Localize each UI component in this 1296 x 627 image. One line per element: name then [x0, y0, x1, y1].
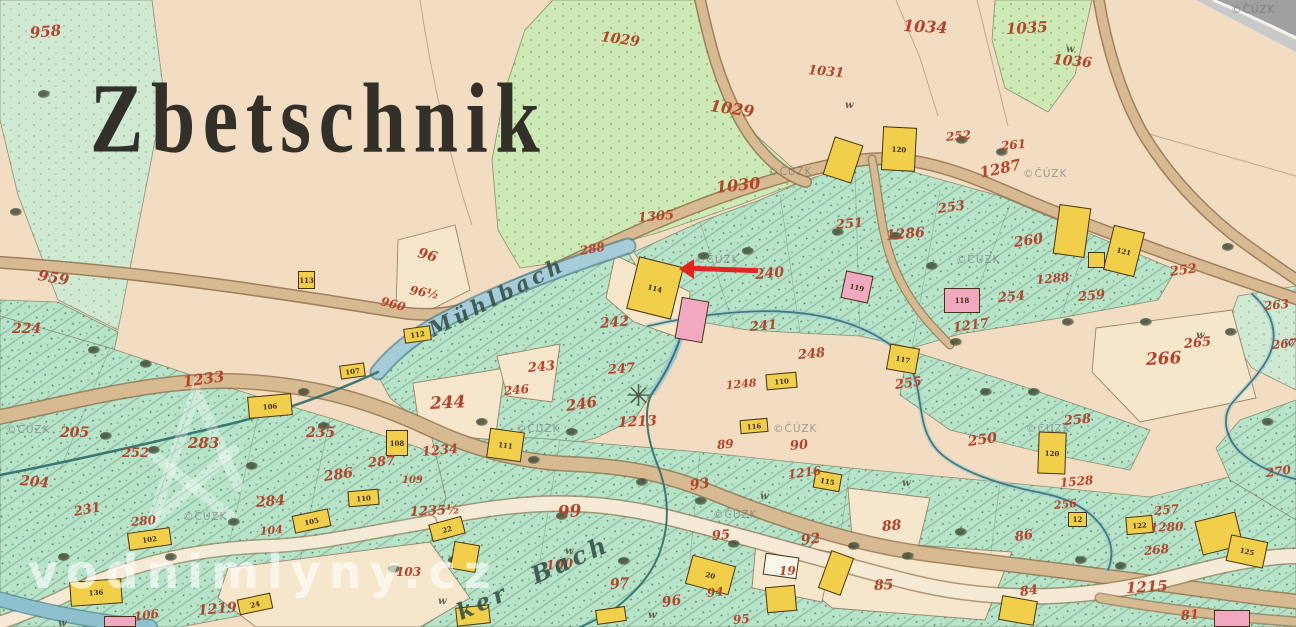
- annotation-arrow-icon: [679, 259, 694, 279]
- annotation-arrow-layer: [0, 0, 1296, 627]
- cadastral-map-canvas[interactable]: 1201141131121061071081101051021362422111…: [0, 0, 1296, 627]
- annotation-arrow-shaft: [693, 266, 758, 273]
